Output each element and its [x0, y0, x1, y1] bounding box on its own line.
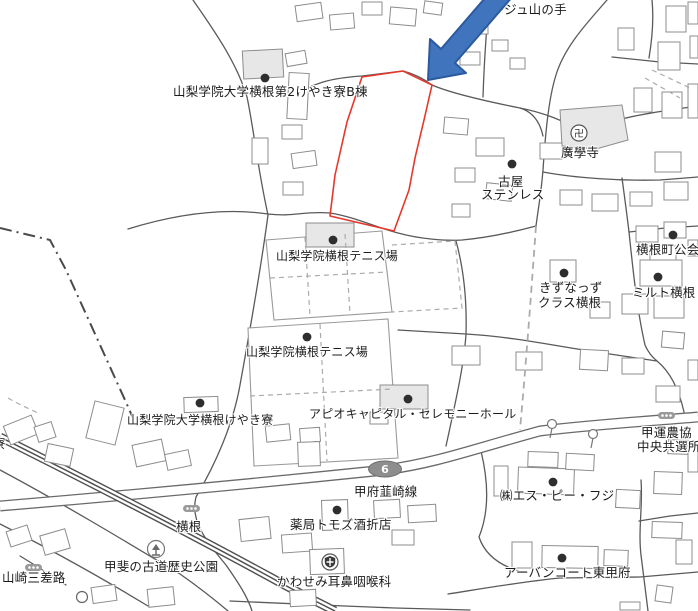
poi-dot — [558, 554, 567, 563]
label-tennis-upper: 山梨学院横根テニス場 — [276, 249, 398, 263]
label-kouun-line1: 甲運農協 — [641, 426, 692, 440]
building — [655, 585, 673, 603]
label-edge-partial: 寮 — [0, 437, 6, 451]
building — [616, 489, 641, 508]
building — [690, 36, 698, 58]
building — [34, 422, 56, 443]
road-circle-icon — [77, 592, 88, 603]
label-keyaki-dorm: 山梨学院大学横根けやき寮 — [127, 413, 273, 427]
building — [636, 226, 658, 242]
building — [688, 360, 698, 380]
building — [656, 386, 680, 402]
building — [658, 42, 680, 70]
signal-pole-icon — [589, 430, 598, 449]
label-route-name: 甲府韮崎線 — [354, 485, 418, 499]
label-yamazaki: 山崎三差路 — [2, 571, 66, 585]
label-lage-yamanote: ラージュ山の手 — [479, 3, 567, 17]
road — [193, 0, 268, 215]
building — [579, 349, 608, 370]
building — [492, 40, 508, 51]
route-badge-number: 6 — [381, 463, 389, 476]
building — [443, 117, 468, 135]
road — [612, 57, 698, 64]
building — [165, 450, 192, 471]
building — [147, 587, 175, 608]
building — [510, 58, 525, 69]
building — [452, 204, 470, 217]
label-urban-court: アーバンコート東甲府 — [504, 566, 631, 580]
hospital-icon — [322, 554, 338, 570]
poi-dot — [333, 506, 342, 515]
poi-dot — [654, 273, 663, 282]
building — [91, 584, 117, 603]
building — [688, 84, 698, 118]
road — [618, 106, 698, 120]
building — [540, 143, 562, 159]
label-kizunazzu-line2: クラス横根 — [538, 296, 601, 310]
poi-dot — [508, 160, 517, 169]
label-sp-fuji: ㈱エス・ピー・フジ — [500, 489, 614, 503]
label-kogakuji: 廣學寺 — [561, 146, 599, 160]
temple-glyph: 卍 — [574, 128, 584, 140]
building — [282, 125, 302, 139]
building — [389, 7, 416, 26]
poi-dot — [404, 395, 413, 404]
building — [688, 2, 698, 24]
building — [300, 427, 321, 442]
building — [460, 52, 480, 65]
building — [40, 529, 71, 555]
building — [661, 331, 684, 349]
building — [618, 28, 634, 50]
poi-dot — [196, 399, 205, 408]
building — [452, 346, 480, 365]
building — [470, 22, 488, 34]
building — [132, 439, 166, 467]
building — [291, 150, 317, 168]
building-shaded — [380, 385, 428, 409]
road — [639, 513, 698, 521]
building — [285, 50, 307, 66]
route-badge: 6 — [369, 461, 402, 477]
building — [560, 190, 582, 205]
label-yokone-crossing: 横根 — [176, 520, 201, 534]
label-tennis-lower: 山梨学院横根テニス場 — [246, 345, 368, 359]
poi-dot — [669, 231, 678, 240]
label-kawasemi-clinic: かわせみ耳鼻咽喉科 — [277, 575, 391, 589]
road — [230, 601, 470, 610]
label-pharmacy: 薬局トモズ酒折店 — [290, 518, 392, 532]
traffic-signal-icon — [658, 412, 675, 419]
building — [252, 138, 268, 164]
building — [592, 194, 618, 211]
waterway-dash — [520, 226, 536, 430]
poi-dot — [329, 236, 338, 245]
building — [239, 516, 271, 541]
building-shaded-temple — [560, 105, 628, 149]
building — [408, 504, 437, 522]
building — [283, 182, 303, 195]
parcel-dash — [652, 70, 690, 88]
building — [664, 182, 688, 200]
building — [455, 168, 475, 182]
building — [634, 88, 652, 112]
building — [423, 1, 442, 15]
building — [604, 550, 629, 567]
building — [298, 442, 321, 467]
traffic-signal-icon — [183, 505, 200, 512]
label-apio-hall: アピオキャピタル・セレモニーホール — [309, 407, 516, 421]
boundary-line — [0, 228, 133, 418]
poi-dot — [549, 478, 558, 487]
building — [516, 352, 542, 370]
building — [528, 451, 559, 467]
building — [290, 589, 317, 606]
building — [666, 6, 686, 32]
building — [476, 138, 504, 156]
building — [630, 192, 652, 206]
building — [295, 2, 323, 21]
label-kaido-park: 甲斐の古道歴史公園 — [104, 560, 218, 574]
poi-dot — [303, 333, 312, 342]
building-shaded — [306, 223, 354, 247]
building — [374, 499, 401, 518]
road — [649, 0, 653, 58]
label-kouun-line2: 中央共選所 — [637, 440, 698, 454]
label-furuya-line2: ステンレス — [481, 188, 545, 202]
building — [620, 602, 640, 610]
parcel-dash — [392, 241, 462, 312]
road — [543, 172, 698, 180]
label-dorm-b: 山梨学院大学横根第2けやき寮B棟 — [173, 85, 368, 99]
park-icon — [148, 541, 165, 558]
building — [652, 521, 683, 538]
map-canvas: 卍 — [0, 0, 698, 611]
label-yokone-kokai: 横根町公会 — [636, 243, 698, 257]
building — [566, 453, 595, 470]
building — [622, 358, 644, 374]
building — [392, 530, 414, 545]
road — [640, 480, 648, 611]
building — [655, 152, 681, 172]
building — [662, 92, 682, 118]
building — [362, 2, 382, 15]
building — [329, 13, 354, 30]
building — [654, 472, 683, 495]
building — [86, 401, 124, 445]
label-kizunazzu-line1: きずなっず — [539, 281, 603, 295]
label-milt-yokone: ミルト横根 — [632, 286, 696, 300]
road — [296, 71, 575, 127]
poi-dot — [560, 269, 569, 278]
temple-icon: 卍 — [571, 125, 587, 141]
building — [676, 540, 692, 564]
building — [640, 260, 682, 286]
building — [3, 415, 38, 445]
poi-dot — [261, 74, 270, 83]
building — [281, 533, 312, 553]
parcel-dash — [8, 398, 40, 414]
